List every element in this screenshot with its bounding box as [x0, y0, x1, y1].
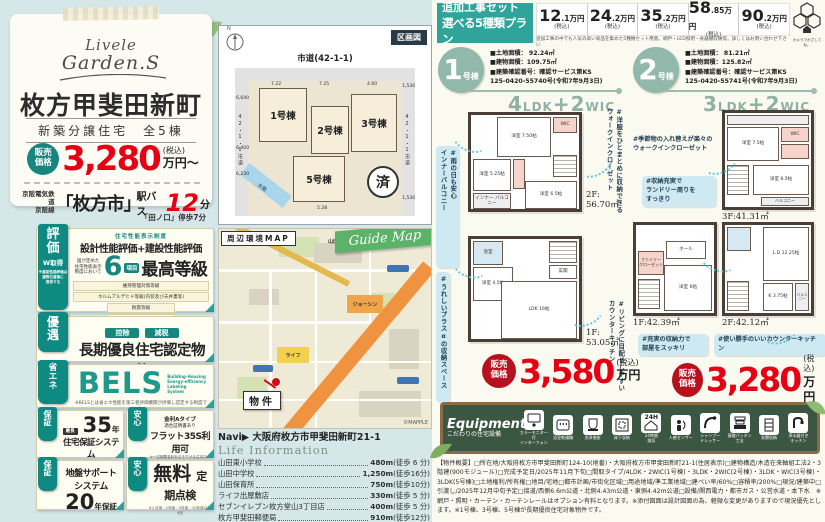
equipment-item: 24H 24時間 換気: [637, 413, 666, 444]
equipment-subtitle: こだわりの住宅設備: [447, 432, 519, 439]
facility-name: 枚方甲斐田郵便局: [218, 512, 276, 522]
room-label: バルコニー: [761, 197, 809, 206]
facility-walk: (徒歩10分): [393, 479, 430, 490]
addon-price-value: 58: [689, 0, 711, 17]
life-info-row: 山田保育所750m(徒歩10分): [218, 479, 430, 490]
price-value: 3,280: [62, 142, 160, 176]
flat35-tab-label: 安 心: [128, 407, 147, 428]
addon-price-value: 35: [640, 6, 662, 25]
ground-warranty-unit: 年保証: [94, 502, 117, 511]
building1-tag-inner-balcony: #雨の日も安心 インナーバルコニー: [436, 146, 459, 268]
building-area: ■建物面積：125.82㎡: [685, 58, 825, 67]
equipment-label: 基礎パッキン 工法: [728, 434, 752, 444]
room-label: K 3.75帖: [763, 283, 793, 311]
map-credit: ©MAPPLE: [403, 420, 428, 426]
free-label: 無料: [153, 463, 191, 485]
east-road-label: 42・1・1市道: [404, 114, 411, 166]
bath-dryer-icon: [553, 415, 573, 435]
road-north: [235, 68, 415, 81]
flyer-canvas: Livele Garden.S 枚方甲斐田新町 新築分譲住宅 全5棟 販売 価格…: [0, 0, 825, 522]
compass-icon: [225, 32, 245, 52]
equipment-label: 洗浄便座: [585, 436, 601, 441]
west-road-label: 42・1・1市道: [237, 114, 244, 166]
facility-walk: (徒歩 5 分): [393, 490, 430, 501]
life-info-row: 山田東小学校480m(徒歩 6 分): [218, 457, 430, 468]
bath: [727, 227, 751, 251]
guide-map-ribbon: Guide Map: [335, 228, 432, 253]
life-info-title: Life Information: [218, 443, 329, 457]
building2-price-row: 販売 価格 3,280 (税込)万円: [672, 354, 825, 406]
building2-tag-storage: #充実の収納力で 部屋をスッキリ: [638, 334, 708, 356]
performance-tab: 評 価 W取得 ※建設性能評価は 建物引渡後に 取得する: [38, 224, 68, 310]
addon-price-tax: (税込): [605, 25, 620, 31]
land-area: ■土地面積： 81.21㎡: [685, 49, 825, 58]
layout-rooms: 3: [703, 92, 718, 116]
leaf-decoration: [804, 396, 825, 416]
building1-number-badge: 1号棟: [438, 47, 484, 93]
equipment-label: 人感センサー: [669, 436, 693, 441]
stairs: [549, 241, 577, 263]
addon-price-value: 12: [539, 6, 561, 25]
bels-logo: BELS: [78, 369, 163, 398]
equipment-label: 浄水器付き キッチン: [788, 434, 808, 444]
equipment-label: 玄関収納: [761, 436, 777, 441]
ventilation-24h-icon: 24H: [641, 413, 661, 433]
preferential-tab: 優 遇: [38, 312, 68, 352]
addon-title-2: 選べる5種類プラン: [442, 15, 533, 47]
dimension-label: 7.25: [319, 82, 329, 87]
balcony-strip: [727, 115, 809, 125]
dimension-label: 6,230: [236, 172, 249, 177]
lot-3: 3号棟: [351, 94, 397, 152]
facility-name: セブンイレブン枚方堂山3丁目店: [218, 501, 325, 512]
warranty-years-unit: 年: [112, 425, 120, 434]
addon-price-dec: .1万円: [561, 14, 584, 23]
facility-name: ライフ出屋敷店: [218, 490, 269, 501]
confirmation-number-2: 125-0420-55740号(令和7年9月3日): [490, 77, 630, 86]
life-info-row: ライフ出屋敷店330m(徒歩 5 分): [218, 490, 430, 501]
equipment-label: 床下収納: [614, 436, 630, 441]
brand-logo-sub: Garden.S: [10, 52, 212, 74]
addon-price-tax: (税込): [757, 25, 772, 31]
performance-count-unit: 項目: [124, 263, 139, 273]
performance-grade-row: 国が定めた 住宅性能表示 制度において 6 項目 最高等級: [73, 255, 209, 280]
confirmation-number: ■建築確認番号：確認サービス第KS: [685, 68, 825, 77]
building2-specs: ■土地面積： 81.21㎡ ■建物面積：125.82㎡ ■建築確認番号：確認サー…: [685, 49, 825, 86]
lot-1: 1号棟: [259, 88, 307, 142]
confirmation-number-2: 125-0420-55741号(令和7年9月3日): [685, 77, 825, 86]
dotted-leader: [271, 498, 368, 499]
top-road-label: 市道(42-1-1): [219, 52, 431, 64]
building2-1f-plan: ファミリー クローゼット ホール 洋室 6帖: [633, 222, 717, 316]
price-unit: 万円〜: [163, 156, 199, 170]
building1-price-row: 販売 価格 3,580 (税込)万円: [482, 354, 640, 388]
brand-hex-logo: カメラでかざしてね。: [791, 2, 823, 48]
building1-price-badge: 販売 価格: [482, 354, 516, 388]
dimension-label: 6,640: [236, 96, 249, 101]
building1-tag-wic: #洋服をひとまとめに収納できる ウォークインクローゼット: [604, 108, 623, 294]
performance-tab-note: ※建設性能評価は 建物引渡後に 取得する: [38, 270, 68, 284]
facility-walk: (徒歩 6 分): [393, 457, 430, 468]
building2-number-badge: 2号棟: [633, 47, 679, 93]
bus-minutes-unit: 分: [200, 196, 210, 211]
dimension-label: 7.22: [271, 82, 281, 87]
building2-2f-plan: L.D 12.25帖 K 3.75帖 バルコニー: [722, 222, 814, 316]
addon-price-strip: 12.1万円(税込) 24.2万円(税込) 35.2万円(税込) 58.85万円…: [536, 3, 790, 36]
deduction-pill: 控除: [105, 328, 139, 338]
equipment-item: 玄関収納: [754, 415, 783, 441]
equipment-item: カラーモニター付 インターフォン: [519, 410, 548, 445]
map-title-label: 周辺環境MAP: [221, 231, 296, 246]
facility-distance: 330m: [370, 490, 393, 501]
facility-walk: (徒歩12分): [393, 512, 430, 522]
room-label: 洋室 8.5帖: [753, 165, 809, 195]
life-info-row: セブンイレブン枚方堂山3丁目店400m(徒歩 5 分): [218, 501, 430, 512]
logo-underline-swoosh: [58, 74, 168, 82]
washi-tape-decoration: [63, 6, 159, 21]
lot-2: 2号棟: [311, 106, 349, 154]
dotted-leader: [278, 520, 368, 521]
facility-name: 山田中学校: [218, 468, 254, 479]
ground-support-title: 地盤サポート システム: [61, 466, 121, 492]
dimension-label: 5.28: [317, 206, 327, 211]
warranty-system-title: 住宅保証システム: [61, 436, 121, 460]
dotted-leader: [256, 476, 360, 477]
room-label: 洋室 6帖: [664, 265, 712, 311]
building1-price-tax: (税込): [616, 358, 638, 367]
equipment-item: 洗浄便座: [578, 415, 607, 441]
life-info-row: 枚方甲斐田郵便局910m(徒歩12分): [218, 512, 430, 522]
price-tax: (税込): [163, 146, 185, 155]
hex-logo-caption: カメラでかざしてね。: [791, 38, 823, 48]
property-map-label: 物件: [243, 391, 281, 410]
motion-sensor-icon: [671, 415, 691, 435]
flat35s-title: フラット35S利用可: [149, 429, 211, 455]
addon-title-1: 追加工事セット: [442, 0, 533, 15]
performance-scheme-label: 住宅性能表示制度: [73, 232, 209, 240]
addon-price-tax: (税込): [554, 25, 569, 31]
building-area: ■建物面積：109.75㎡: [490, 58, 630, 67]
life-info-list: 山田東小学校480m(徒歩 6 分) 山田中学校1,250m(徒歩16分) 山田…: [218, 457, 430, 522]
performance-count: 6: [104, 255, 123, 279]
flat35-tab: 安 心: [128, 407, 147, 441]
stairs: [727, 281, 749, 311]
lot-5: 5号棟: [293, 156, 345, 202]
equipment-item: 人感センサー: [666, 415, 695, 441]
entrance-storage-icon: [759, 415, 779, 435]
sold-mark: 済: [367, 166, 399, 198]
map-building-block: [389, 329, 419, 369]
addon-plan-header: 追加工事セット 選べる5種類プラン: [437, 3, 533, 43]
price-label-badge: 販売 価格: [27, 143, 59, 175]
equipment-label: シャンプー ドレッサー: [700, 434, 720, 444]
building2-3f-area: 3F:41.31㎡: [722, 212, 769, 222]
hero-card: Livele Garden.S 枚方甲斐田新町 新築分譲住宅 全5棟 販売 価格…: [10, 14, 212, 206]
ground-support-tab-label: 保 証: [38, 457, 57, 478]
walk-note: 「田ノ口」停歩7分: [10, 212, 206, 223]
building2-price: 3,280: [706, 363, 800, 396]
underfloor-storage-icon: [612, 415, 632, 435]
equipment-label: 24時間 換気: [645, 434, 658, 444]
equipment-item: 浄水器付き キッチン: [784, 413, 813, 444]
addon-price: 12.1万円(税込): [537, 4, 588, 35]
map-route-sign: [253, 365, 273, 372]
warranty35-tab-label: 保 証: [38, 407, 57, 428]
equipment-item: 浴室乾燥機: [548, 415, 577, 441]
compass-north-label: N: [227, 26, 231, 32]
map-building-block: [249, 289, 279, 305]
addon-price: 58.85万円(税込): [689, 4, 740, 35]
building1-2f-plan: 洋室 7.50帖 WIC 洋室 5.25帖 洋室 6.5帖 インナー バルコニー: [468, 112, 582, 212]
ground-support-tab: 保 証: [38, 457, 57, 491]
map-road: [219, 321, 379, 324]
foundation-packing-icon: [730, 413, 750, 433]
warranty35-tab: 保 証: [38, 407, 57, 441]
24h-badge: 24H: [641, 414, 661, 421]
room-label: 洋室 5.25帖: [473, 159, 511, 191]
addon-price: 90.2万円(税込): [739, 4, 789, 35]
hexagon-house-icon: [791, 2, 823, 34]
map-road: [219, 361, 431, 363]
area-map: ジョーシン ライフ 山田東小 物件 周辺環境MAP Guide Map ©MAP…: [218, 228, 432, 429]
closet: [781, 144, 809, 159]
performance-grade: 最高等級: [141, 255, 207, 280]
facility-name: 山田東小学校: [218, 457, 262, 468]
addon-price-value: 24: [590, 6, 612, 25]
performance-pre-note: 国が定めた 住宅性能表示 制度において: [75, 259, 102, 276]
facility-distance: 480m: [370, 457, 393, 468]
addon-price-dec: .2万円: [663, 14, 686, 23]
facility-walk: (徒歩 5 分): [393, 501, 430, 512]
building1-tag-storage: #うれしいプラスαの収納スペース: [436, 272, 450, 402]
taxcut-pill: 減税: [145, 328, 179, 338]
map-building-block: [359, 391, 421, 417]
land-area: ■土地面積： 92.24㎡: [490, 49, 630, 58]
equipment-item: 基礎パッキン 工法: [725, 413, 754, 444]
addon-price-dec: .2万円: [764, 14, 787, 23]
equipment-item: シャンプー ドレッサー: [695, 413, 724, 444]
building1-number: 1: [443, 47, 462, 93]
building2-price-tax: (税込): [803, 354, 814, 373]
ground-warranty-years: 20: [65, 490, 94, 514]
room-label: 洋室 7.50帖: [497, 117, 551, 157]
grade-item: 耐震等級: [107, 303, 176, 313]
closet: [513, 159, 525, 189]
inspection-tab-label: 安 心: [128, 457, 147, 478]
building1-suffix: 号棟: [463, 54, 479, 100]
room-label: インナー バルコニー: [473, 193, 511, 209]
room-label: 洋室 6.5帖: [525, 181, 577, 209]
leaf-decoration: [428, 440, 454, 460]
grade-item: 維持管理対策等級: [73, 281, 209, 291]
bels-subtitle: Building-Housing Energy-efficiency Label…: [167, 374, 206, 394]
preferential-tab-label: 優 遇: [38, 312, 68, 341]
warranty-years: 35: [83, 413, 112, 437]
confirmation-number: ■建築確認番号：確認サービス第KS: [490, 68, 630, 77]
addon-price-tax: (税込): [655, 25, 670, 31]
inspection-note: 6ヶ月後・2年後・5年後・10年後の計4回: [149, 506, 211, 515]
facility-distance: 750m: [370, 479, 393, 490]
addon-price: 24.2万円(税込): [588, 4, 639, 35]
facility-distance: 910m: [370, 512, 393, 522]
facility-walk: (徒歩16分): [393, 468, 430, 479]
building1-specs: ■土地面積： 92.24㎡ ■建物面積：109.75㎡ ■建築確認番号：確認サー…: [490, 49, 630, 86]
shampoo-dresser-icon: [700, 413, 720, 433]
property-outline-text: 【物件概要】□所在地/大阪府枚方市甲斐田新町124-10(地番)・大阪府枚方市甲…: [437, 459, 821, 516]
facility-distance: 1,250m: [362, 468, 393, 479]
dotted-leader: [327, 509, 368, 510]
site-plan-corner-label: 区画図: [391, 30, 427, 45]
building2-price-badge: 販売 価格: [672, 363, 703, 397]
facility-name: 山田保育所: [218, 479, 254, 490]
stairs: [638, 279, 660, 309]
dotted-leader: [256, 487, 368, 488]
addon-price-value: 90: [742, 6, 764, 25]
bels-tab-label: 省 エ ネ: [38, 360, 68, 391]
building2-number: 2: [638, 47, 657, 93]
map-route-sign: [387, 265, 409, 272]
washlet-icon: [583, 415, 603, 435]
equipment-item: 床下収納: [607, 415, 636, 441]
building1-price: 3,580: [519, 355, 613, 388]
room-label: バルコニー: [795, 283, 809, 311]
rate-type-label: 金利Aタイプ: [149, 415, 211, 423]
site-plan-card: N 区画図 市道(42-1-1) 1号棟 2号棟 3号棟 5号棟 済 水路 6,…: [218, 25, 432, 225]
map-route-sign: [397, 377, 419, 384]
stairs: [553, 155, 577, 177]
grade-item: ホルムアルデヒド等級(内装及び天井裏等): [73, 292, 209, 302]
inspection-tab: 安 心: [128, 457, 147, 491]
dimension-label: 1,530: [402, 196, 415, 201]
poi-joshin: ジョーシン: [347, 295, 383, 313]
room-label: 玄関: [549, 265, 577, 279]
life-info-row: 山田中学校1,250m(徒歩16分): [218, 468, 430, 479]
bels-tab: 省 エ ネ: [38, 360, 68, 404]
equipment-label: 浴室乾燥機: [553, 436, 573, 441]
facility-distance: 400m: [370, 501, 393, 512]
room-label: L.D 12.25帖: [763, 227, 809, 281]
performance-tab-label: 評 価: [38, 224, 68, 255]
building1-1f-plan: 浴室 洋室 4.5帖 玄関 LDK 16帖: [468, 236, 582, 342]
building2-1f-area: 1F:42.39㎡: [633, 318, 680, 328]
room-label: WIC: [781, 127, 809, 142]
price-row: 販売 価格 3,280 (税込)万円〜: [18, 142, 208, 176]
performance-tab-sub: W取得: [38, 257, 68, 267]
dotted-leader: [264, 465, 369, 466]
performance-headline: 設計性能評価+建設性能評価: [73, 240, 209, 255]
equipment-bar: Equipment こだわりの住宅設備 カラーモニター付 インターフォン 浴室乾…: [440, 402, 820, 454]
addon-price-dec: .2万円: [612, 14, 635, 23]
navi-address: Navi▶ 大阪府枚方市甲斐田新町21-1: [218, 429, 430, 443]
poi-life: ライフ: [277, 347, 309, 363]
building2-suffix: 号棟: [658, 54, 674, 100]
dimension-label: 1,530: [402, 84, 415, 89]
equipment-label: カラーモニター付 インターフォン: [519, 431, 548, 445]
room-label: LDK 16帖: [501, 281, 577, 339]
dimension-label: 4.60: [367, 82, 377, 87]
addon-price: 35.2万円(税込): [638, 4, 689, 35]
intercom-icon: [524, 410, 544, 430]
building1-price-unit: 万円: [616, 368, 640, 382]
room-label: ファミリー クローゼット: [638, 251, 664, 275]
max-label: 最長: [63, 428, 78, 435]
room-label: WIC: [553, 117, 577, 133]
divider-dashed: [24, 182, 200, 184]
building2-tag-laundry: #収納充実で ランドリー周りを すっきり: [642, 176, 716, 207]
equipment-title: Equipment: [447, 418, 519, 432]
property-title: 枚方甲斐田新町: [10, 86, 212, 122]
addon-note: 追加工事の中でも人気の高い商品を集めた5種類セット用意。網戸・LED照明・食器棚…: [536, 36, 788, 48]
